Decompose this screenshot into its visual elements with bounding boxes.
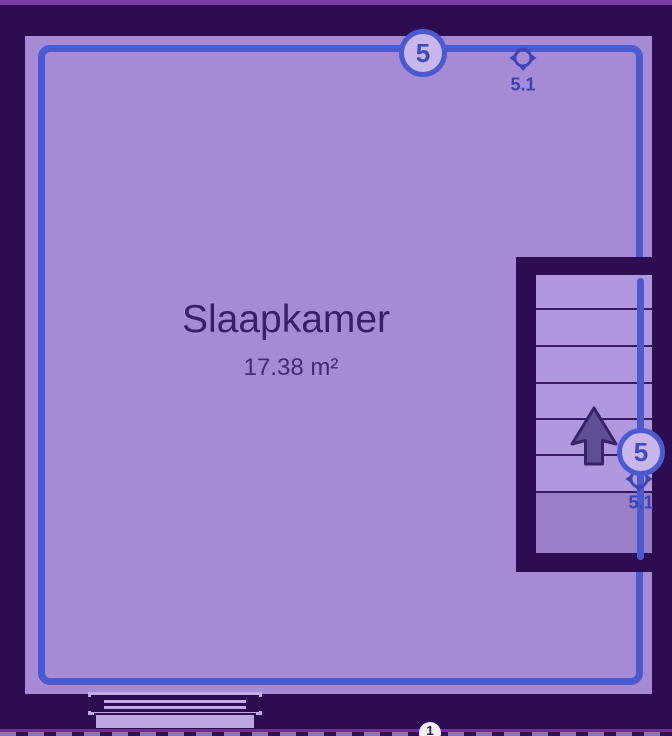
window-glass-line — [91, 706, 259, 709]
stair-step-divider — [536, 308, 652, 310]
stair-up-arrow-icon — [570, 406, 618, 466]
route-node-button[interactable]: 5 — [617, 428, 665, 476]
stair-step-divider — [536, 382, 652, 384]
route-line — [637, 278, 644, 560]
top-app-strip — [0, 0, 672, 5]
room-name-label: Slaapkamer — [182, 298, 390, 342]
window-sill — [94, 713, 256, 730]
window-glass-line — [91, 700, 259, 703]
route-node-button[interactable]: 5 — [399, 29, 447, 77]
thumbnail-strip — [0, 732, 672, 736]
floorplan-canvas[interactable]: Slaapkamer 17.38 m² 5.1 5 5 5.1 — [0, 0, 672, 736]
viewpoint-label: 5.1 — [510, 75, 535, 96]
viewpoint-label: 5.1 — [628, 493, 653, 514]
room-area-label: 17.38 m² — [244, 354, 339, 382]
window — [88, 692, 262, 715]
window-jamb — [88, 697, 104, 711]
window-jamb — [246, 697, 262, 711]
stair-step-divider — [536, 345, 652, 347]
viewpoint-icon[interactable] — [508, 42, 538, 72]
route-node-button[interactable]: 1 — [419, 722, 441, 736]
